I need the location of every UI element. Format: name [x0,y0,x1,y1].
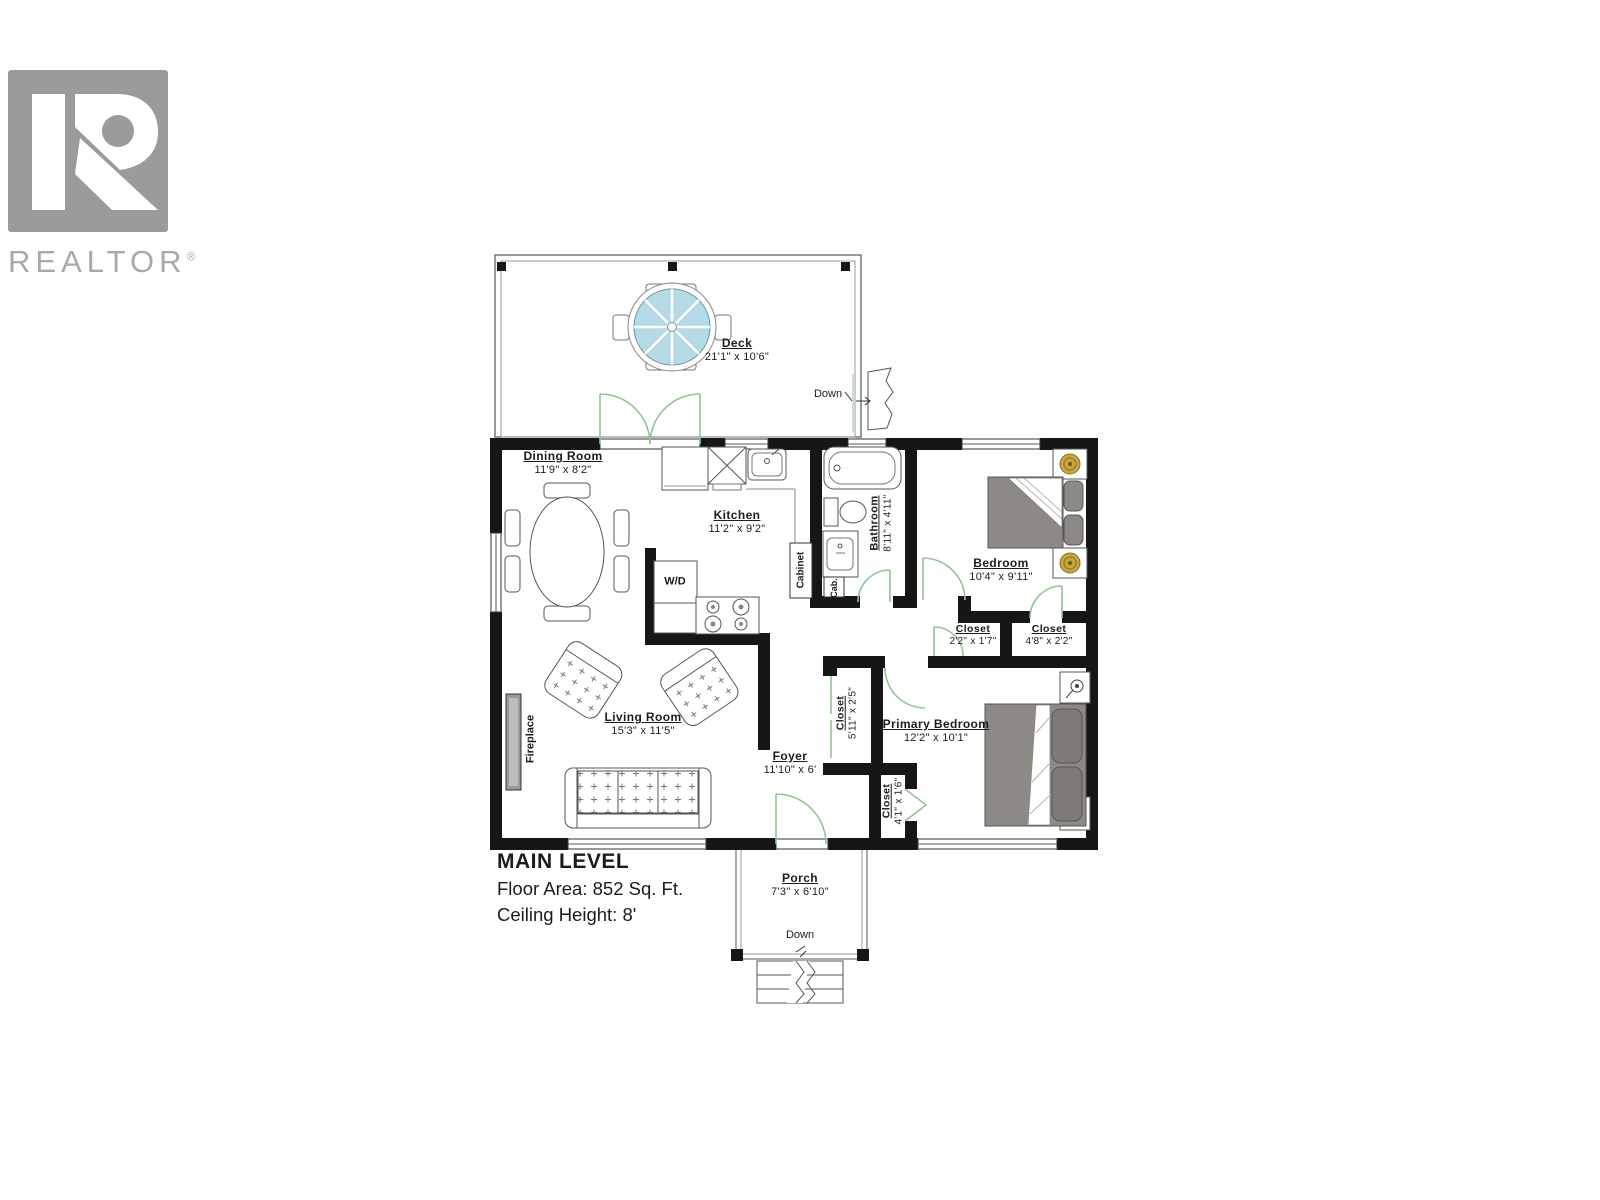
floor-area: Floor Area: 852 Sq. Ft. [497,877,683,901]
bedroom-closet-label: Closet 4'8" x 2'2" [1025,623,1072,648]
porch-label: Porch 7'3" x 6'10" [771,871,829,899]
primary-bedroom-furniture [985,672,1090,830]
foyer-label: Foyer 11'10" x 6' [764,749,817,777]
bed-icon [988,477,1083,548]
kitchen-sink-icon [748,449,786,480]
fireplace-label: Fireplace [525,715,538,763]
living-room-label: Living Room 15'3" x 11'5" [604,710,681,738]
sofa-icon [565,768,711,828]
dining-room-label: Dining Room 11'9" x 8'2" [523,449,602,477]
deck-label: Deck 21'1" x 10'6" [705,336,769,364]
dishwasher-icon [708,447,746,490]
porch-outline [731,850,869,961]
primary-bedroom-label: Primary Bedroom 12'2" x 10'1" [883,717,990,745]
foyer-closet-label: Closet 5'11" x 2'5" [835,687,860,739]
primary-closet-label: Closet 4'1" x 1'6" [881,777,906,824]
deck-down-label: Down [814,388,842,400]
level-title: MAIN LEVEL [497,848,683,875]
level-summary: MAIN LEVEL Floor Area: 852 Sq. Ft. Ceili… [497,848,683,927]
cab-label: Cab. [829,578,839,598]
floor-plan-page: REALTOR® [0,0,1600,1200]
dining-table-icon [505,483,629,621]
kitchen-label: Kitchen 11'2" x 9'2" [709,508,766,536]
bathtub-icon [824,447,901,489]
kitchen-fixtures [654,447,812,634]
toilet-icon [824,498,866,526]
ceiling-height: Ceiling Height: 8' [497,903,683,927]
lamp-icon [1060,454,1080,474]
floor-plan-drawing [0,0,1600,1200]
cabinet-label: Cabinet [795,552,807,589]
stove-icon [696,597,759,634]
bed-icon [985,704,1086,826]
fireplace-icon [506,694,521,790]
bathroom-sink-icon [823,531,858,577]
washer-dryer-label: W/D [664,576,685,589]
hall-closet-label: Closet 2'2" x 1'7" [949,623,996,648]
deck-stairs-icon [845,368,893,430]
porch-down-label: Down [786,929,814,941]
bedroom-label: Bedroom 10'4" x 9'11" [969,556,1032,584]
bathroom-label: Bathroom 8'11" x 4'11" [868,494,893,551]
porch-steps-icon [757,946,843,1003]
fridge-icon [662,447,708,490]
lamp-icon [1060,553,1080,573]
